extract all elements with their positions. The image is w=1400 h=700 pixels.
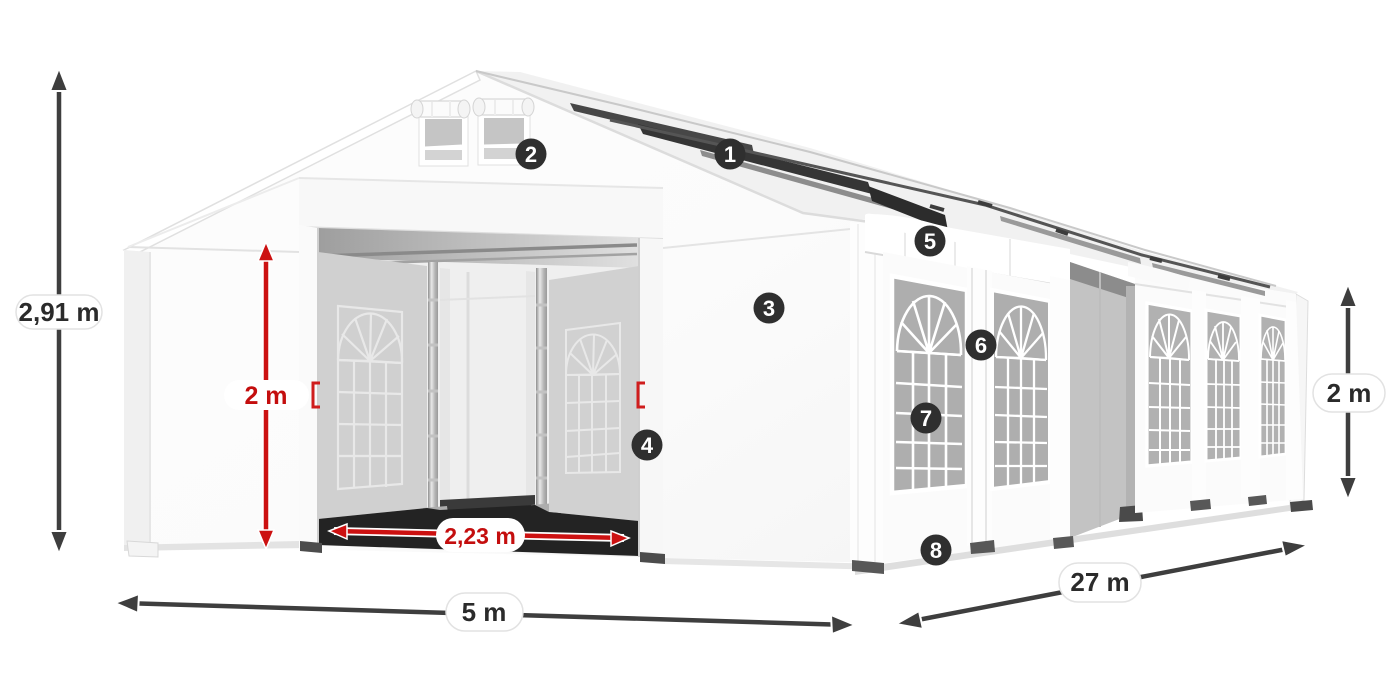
svg-text:6: 6 <box>975 333 987 358</box>
svg-text:2,23 m: 2,23 m <box>444 523 516 549</box>
svg-text:8: 8 <box>930 538 942 563</box>
svg-text:1: 1 <box>724 142 736 167</box>
svg-text:4: 4 <box>641 433 654 458</box>
svg-text:7: 7 <box>920 406 932 431</box>
svg-text:2,91 m: 2,91 m <box>19 297 100 327</box>
svg-text:2: 2 <box>525 142 537 167</box>
svg-text:3: 3 <box>763 296 775 321</box>
svg-text:5 m: 5 m <box>462 597 507 627</box>
svg-text:2 m: 2 m <box>244 382 287 410</box>
svg-text:5: 5 <box>924 229 936 254</box>
svg-text:27 m: 27 m <box>1070 567 1129 597</box>
svg-text:2 m: 2 m <box>1327 378 1372 408</box>
